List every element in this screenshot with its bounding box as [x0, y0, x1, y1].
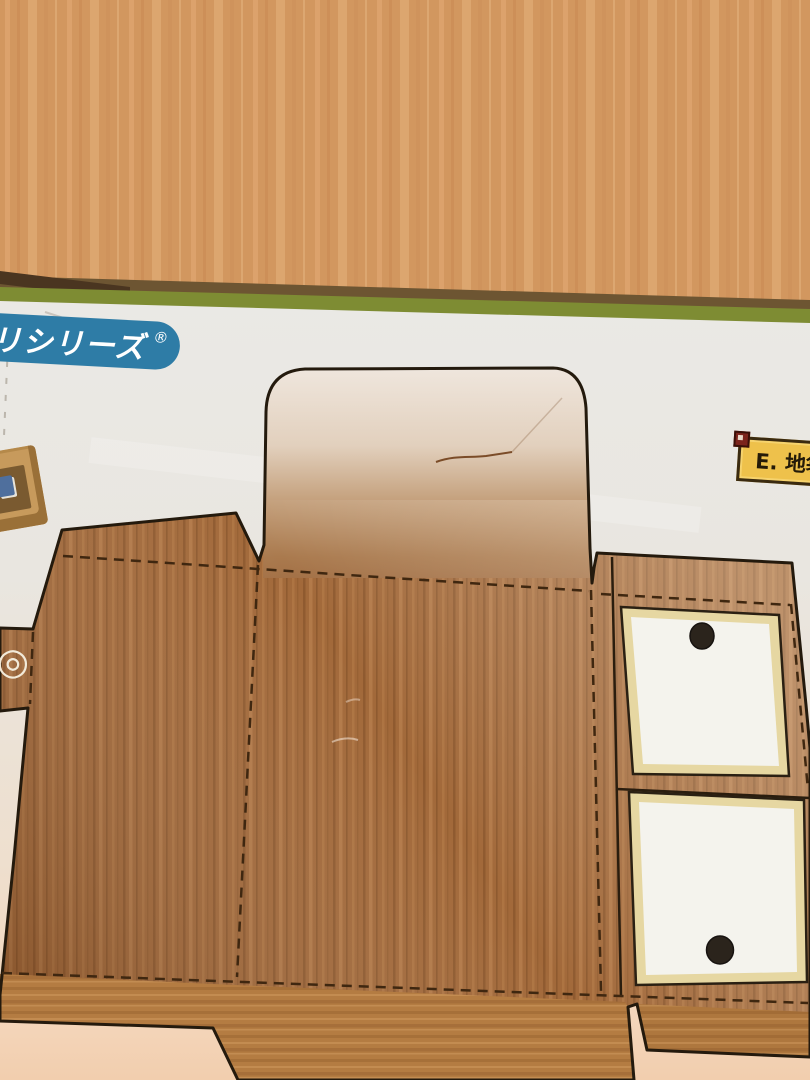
registered-trademark-icon: ® — [152, 328, 170, 347]
scene — [0, 0, 810, 1080]
shoji-door-panel-1 — [621, 607, 789, 776]
part-label: E. 地袋 — [736, 436, 810, 490]
finger-hole-1 — [690, 623, 714, 649]
registration-mark: ◎ — [0, 642, 31, 681]
part-label-text: E. 地袋 — [754, 445, 810, 480]
photo-of-papercraft-sheet: リシリーズ ® E. 地袋 ◎ — [0, 0, 810, 1080]
shoji-door-panel-2 — [629, 792, 807, 985]
series-badge-label: リシリーズ — [0, 315, 154, 366]
finger-hole-2 — [707, 936, 734, 964]
corner-pin-icon — [733, 431, 750, 448]
